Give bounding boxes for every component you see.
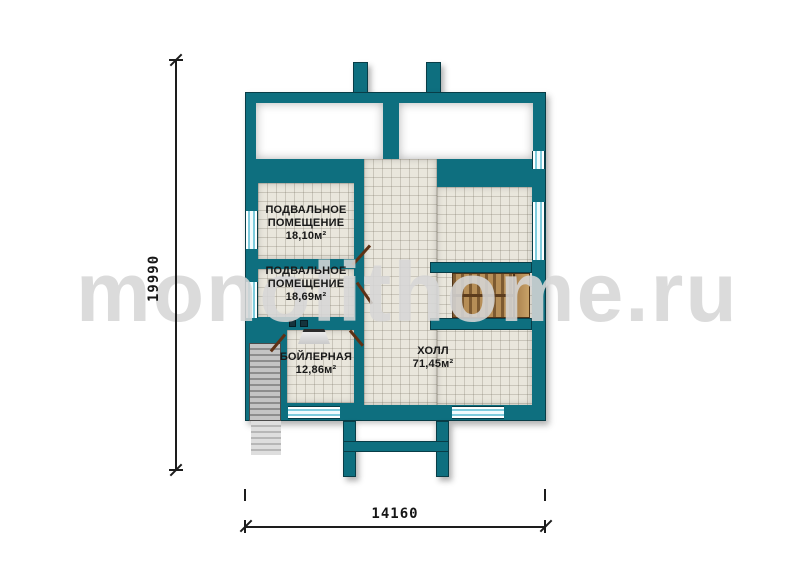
room-name-line: ХОЛЛ — [383, 345, 483, 358]
dimension-cap — [169, 59, 183, 61]
hall-label: ХОЛЛ 71,45м² — [383, 345, 483, 371]
basement-room-1-label: ПОДВАЛЬНОЕ ПОМЕЩЕНИЕ 18,10м² — [254, 204, 358, 243]
room-top-right — [399, 103, 533, 159]
floor-plan-canvas: 19990 14160 — [0, 0, 794, 576]
room-area: 18,69м² — [254, 291, 358, 304]
dimension-line-horizontal — [245, 526, 546, 528]
room-area: 71,45м² — [383, 358, 483, 371]
porch-landing — [356, 421, 436, 441]
witness-mark — [544, 489, 546, 501]
dimension-width-value: 14160 — [345, 506, 445, 522]
room-name-line: ПОДВАЛЬНОЕ — [254, 265, 358, 278]
boiler-room-label: БОЙЛЕРНАЯ 12,86м² — [262, 351, 370, 377]
dimension-cap — [169, 469, 183, 471]
window-east-small — [532, 151, 545, 169]
room-name-line: ПОДВАЛЬНОЕ — [254, 204, 358, 217]
window-south-1 — [288, 406, 340, 419]
room-name-line: ПОМЕЩЕНИЕ — [254, 278, 358, 291]
dimension-line-vertical — [175, 60, 177, 470]
exterior-stair-run — [251, 421, 281, 455]
room-name-line: БОЙЛЕРНАЯ — [262, 351, 370, 364]
dimension-cap — [544, 520, 546, 533]
dimension-height-value: 19990 — [146, 232, 162, 302]
room-name-line: ПОМЕЩЕНИЕ — [254, 217, 358, 230]
porch-crossbar-wall — [343, 441, 449, 452]
basement-room-2-label: ПОДВАЛЬНОЕ ПОМЕЩЕНИЕ 18,69м² — [254, 265, 358, 304]
room-area: 18,10м² — [254, 230, 358, 243]
witness-mark — [244, 489, 246, 501]
window-south-2 — [452, 406, 504, 419]
room-top-left — [256, 103, 383, 159]
room-area: 12,86м² — [262, 364, 370, 377]
dimension-cap — [244, 520, 246, 533]
